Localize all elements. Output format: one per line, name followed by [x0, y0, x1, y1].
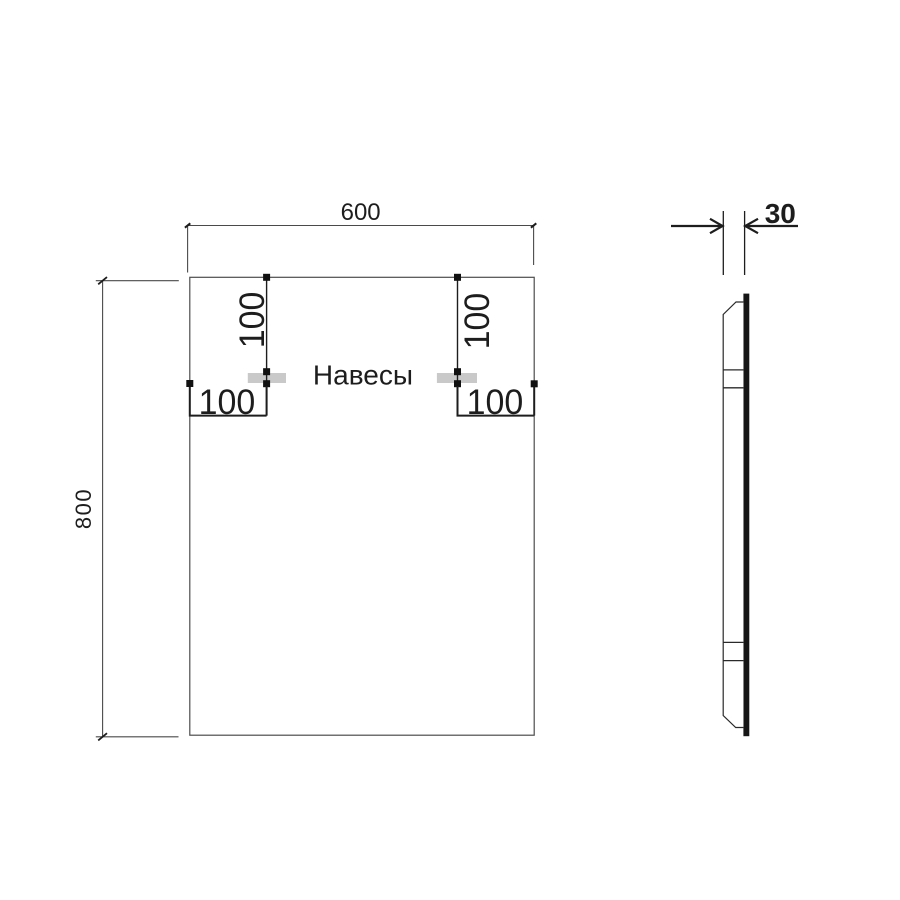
svg-text:100: 100: [458, 293, 497, 350]
svg-text:100: 100: [199, 384, 256, 423]
svg-text:800: 800: [71, 488, 96, 529]
svg-text:Навесы: Навесы: [313, 359, 413, 390]
svg-text:30: 30: [765, 198, 796, 229]
svg-text:100: 100: [233, 292, 272, 349]
svg-text:100: 100: [467, 384, 524, 423]
svg-text:600: 600: [341, 199, 381, 226]
